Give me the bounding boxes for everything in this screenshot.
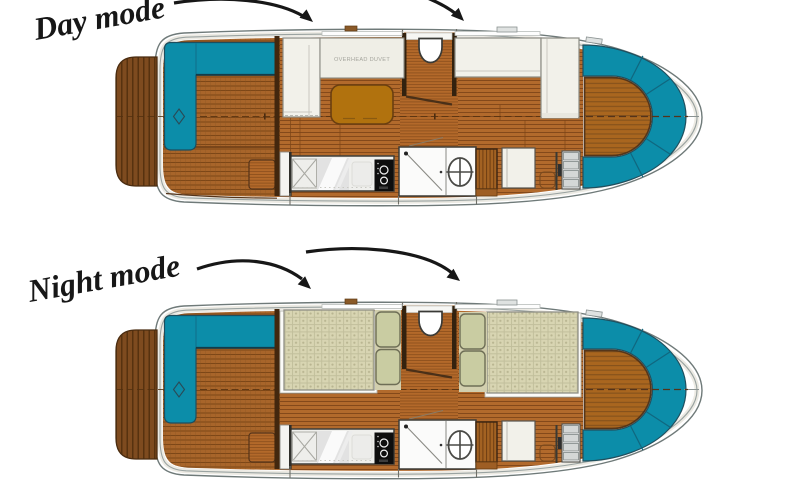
svg-text:Night mode: Night mode xyxy=(24,247,183,309)
svg-text:Day mode: Day mode xyxy=(30,0,168,47)
svg-text:OVERHEAD DUVET: OVERHEAD DUVET xyxy=(334,57,390,63)
